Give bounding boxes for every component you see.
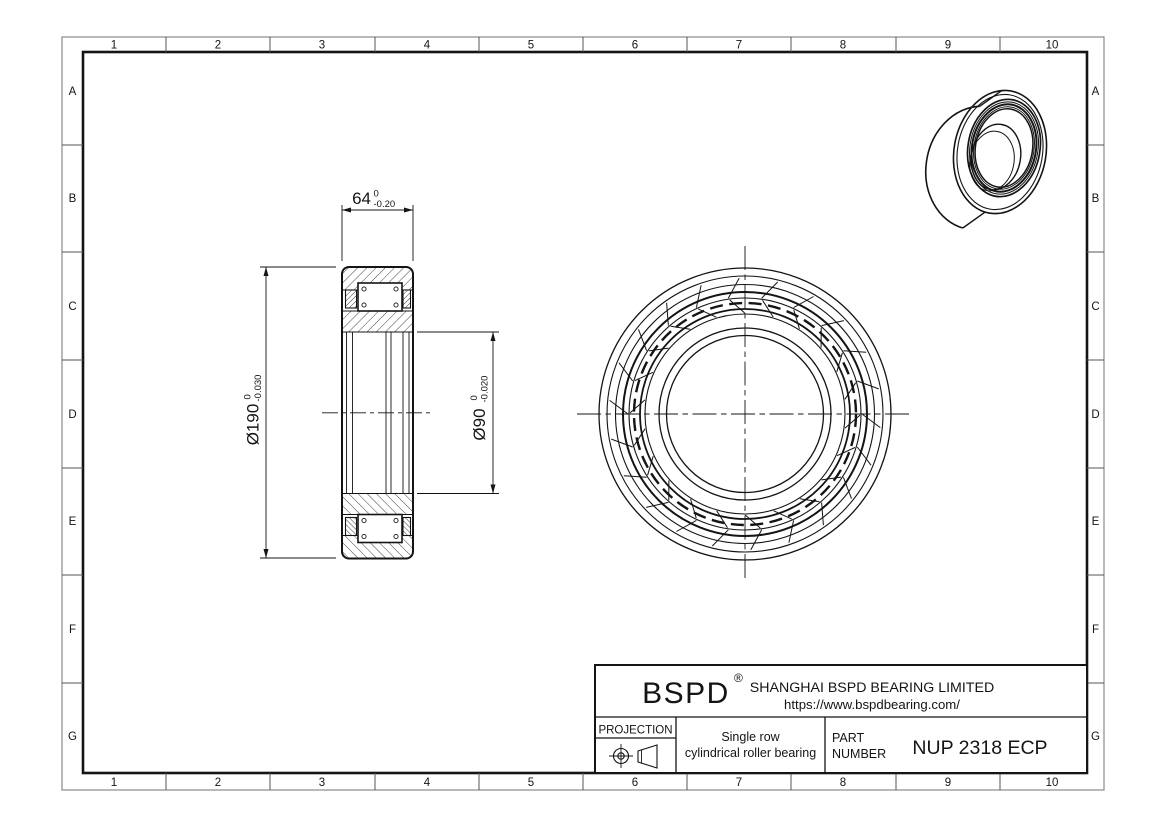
grid-row-label: F (69, 624, 76, 636)
grid-col-label: 7 (736, 40, 742, 52)
section-view-bottom-half (342, 494, 413, 559)
grid-row-label: C (68, 301, 76, 313)
bearing-description-line1: Single row (721, 730, 780, 744)
grid-row-label: C (1091, 301, 1099, 313)
grid-col-label: 8 (840, 777, 846, 789)
grid-row-label: E (69, 516, 77, 528)
company-logo: BSPD (642, 677, 730, 710)
drawing-sheet: 1 2 3 4 5 6 7 8 9 10 1 2 3 4 5 6 7 8 9 1… (0, 0, 1169, 826)
grid-col-label: 6 (632, 777, 638, 789)
grid-row-label: D (1091, 409, 1099, 421)
grid-col-label: 10 (1046, 40, 1059, 52)
bearing-description-line2: cylindrical roller bearing (685, 746, 816, 760)
grid-col-label: 4 (424, 40, 431, 52)
grid-row-label: G (68, 731, 77, 743)
part-number-label-line2: NUMBER (832, 747, 886, 761)
grid-col-label: 5 (528, 40, 534, 52)
dim-width-tol-lower: -0.20 (374, 199, 396, 210)
grid-col-label: 2 (215, 777, 221, 789)
grid-row-label: A (1092, 86, 1100, 98)
section-view-top-half (342, 267, 413, 332)
grid-row-label: E (1092, 516, 1100, 528)
inner-ring-section (342, 311, 413, 332)
dim-od-tol-upper: 0 (243, 394, 254, 399)
dim-bore-value: Ø90 (470, 408, 489, 440)
projection-label: PROJECTION (598, 725, 672, 737)
grid-row-label: A (69, 86, 77, 98)
grid-row-label: F (1092, 624, 1099, 636)
grid-col-label: 5 (528, 777, 534, 789)
company-name: SHANGHAI BSPD BEARING LIMITED (750, 680, 994, 696)
registered-trademark-icon: ® (734, 671, 743, 685)
flange-rib-section (403, 290, 411, 308)
grid-col-label: 1 (111, 777, 117, 789)
dim-width-tol-upper: 0 (374, 189, 379, 200)
grid-col-label: 3 (319, 40, 325, 52)
grid-col-label: 3 (319, 777, 325, 789)
company-website: https://www.bspdbearing.com/ (784, 697, 960, 712)
part-number-value: NUP 2318 ECP (912, 737, 1047, 759)
grid-col-label: 9 (945, 40, 951, 52)
grid-col-label: 2 (215, 40, 221, 52)
grid-row-label: B (69, 193, 77, 205)
grid-col-label: 9 (945, 777, 951, 789)
grid-col-label: 4 (424, 777, 431, 789)
dim-od-tol-lower: -0.030 (253, 375, 264, 402)
part-number-label-line1: PART (832, 731, 865, 745)
dim-bore-tol-lower: -0.020 (480, 376, 491, 403)
dim-od-value: Ø190 (244, 404, 263, 446)
dim-width-value: 64 (352, 189, 371, 208)
grid-col-label: 6 (632, 40, 638, 52)
dim-bore-tol-upper: 0 (469, 395, 480, 400)
grid-row-label: D (68, 409, 76, 421)
grid-row-label: B (1092, 193, 1100, 205)
grid-row-label: G (1091, 731, 1100, 743)
title-block: BSPD ® SHANGHAI BSPD BEARING LIMITED htt… (595, 665, 1087, 773)
grid-col-label: 10 (1046, 777, 1059, 789)
grid-col-label: 7 (736, 777, 742, 789)
flange-rib-section (346, 290, 357, 308)
grid-col-label: 1 (111, 40, 117, 52)
grid-col-label: 8 (840, 40, 846, 52)
cad-drawing-svg: 1 2 3 4 5 6 7 8 9 10 1 2 3 4 5 6 7 8 9 1… (0, 0, 1169, 826)
